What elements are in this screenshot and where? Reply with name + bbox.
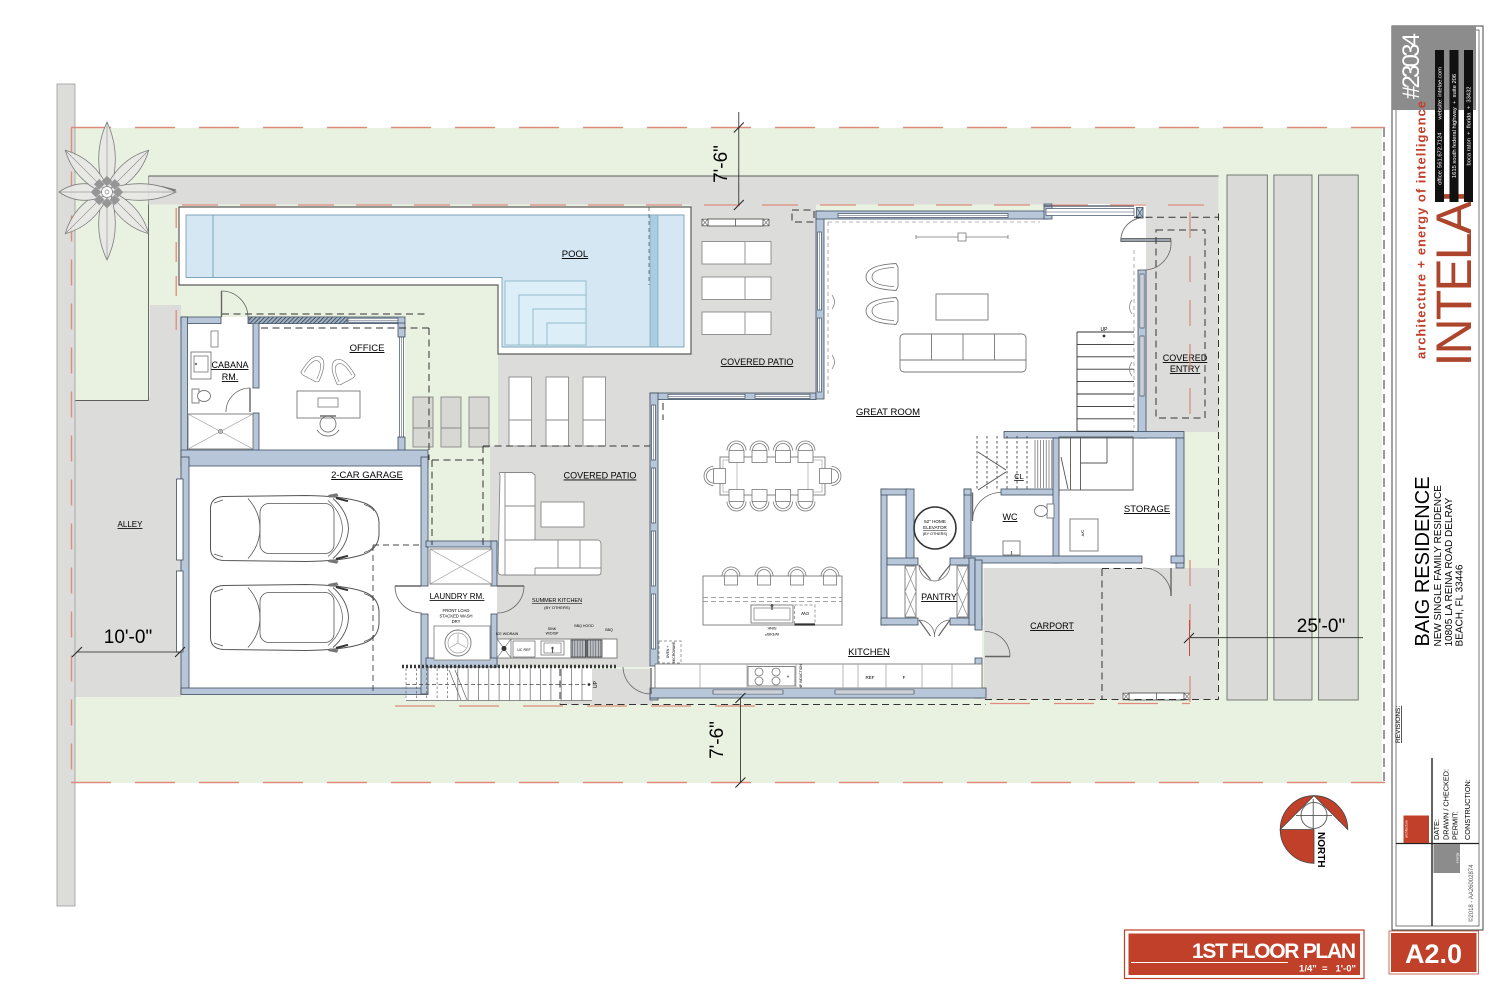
svg-text:#23034: #23034: [1398, 33, 1425, 99]
svg-text:F: F: [903, 675, 906, 680]
svg-text:GREAT ROOM: GREAT ROOM: [856, 407, 920, 418]
svg-text:STORAGE: STORAGE: [1124, 504, 1170, 515]
svg-text:W/DISP: W/DISP: [546, 632, 559, 636]
svg-text:OVEN +: OVEN +: [666, 646, 670, 659]
svg-text:COVERED: COVERED: [1163, 353, 1208, 363]
svg-text:SUMMER KITCHEN: SUMMER KITCHEN: [532, 598, 582, 604]
svg-text:office: 561.672.7124 we: office: 561.672.7124 website: intelae.co…: [1438, 67, 1444, 185]
svg-text:DATE:: DATE:: [1432, 819, 1441, 840]
svg-text:KITCHEN: KITCHEN: [848, 647, 890, 658]
svg-text:(BY OTHERS): (BY OTHERS): [544, 605, 570, 610]
svg-text:ICE W/DRAIN: ICE W/DRAIN: [496, 632, 519, 636]
svg-text:CABANA: CABANA: [211, 360, 248, 370]
svg-text:BBQ HOOD: BBQ HOOD: [574, 624, 594, 628]
svg-text:ALLEY: ALLEY: [118, 520, 144, 529]
svg-text:RM.: RM.: [222, 372, 239, 382]
svg-text:MICROWAVE: MICROWAVE: [672, 641, 676, 663]
svg-text:52" HOME: 52" HOME: [924, 519, 946, 524]
svg-text:BAIG RESIDENCE: BAIG RESIDENCE: [1412, 476, 1434, 646]
svg-text:2-CAR GARAGE: 2-CAR GARAGE: [331, 470, 403, 481]
svg-text:SINK: SINK: [548, 627, 557, 631]
svg-text:architecture: architecture: [1405, 820, 1409, 838]
svg-text:OFFICE: OFFICE: [350, 343, 385, 354]
svg-text:W/DISP: W/DISP: [765, 632, 780, 637]
svg-text:ENTRY: ENTRY: [1170, 364, 1200, 374]
svg-text:LAUNDRY RM.: LAUNDRY RM.: [430, 592, 485, 601]
svg-text:PERMIT:: PERMIT:: [1451, 811, 1460, 840]
svg-text:(BY OTHERS): (BY OTHERS): [923, 532, 948, 536]
svg-text:1615 south federal highway +: 1615 south federal highway + suite 206: [1452, 74, 1458, 178]
svg-text:SINK: SINK: [767, 626, 777, 631]
svg-text:architecture + energy of intel: architecture + energy of intelligence: [1414, 101, 1429, 359]
svg-text:1/4" = 1'-0": 1/4" = 1'-0": [1299, 964, 1356, 975]
svg-text:REF: REF: [866, 675, 875, 680]
svg-text:A2.0: A2.0: [1405, 939, 1462, 969]
svg-text:DW: DW: [801, 611, 809, 616]
svg-text:energy: energy: [1456, 853, 1460, 864]
svg-text:STACKED WASH: STACKED WASH: [439, 614, 472, 619]
svg-text:©2018 - AA26002874: ©2018 - AA26002874: [1468, 864, 1475, 922]
svg-text:UP: UP: [593, 680, 599, 688]
svg-text:DRAWN / CHECKED:: DRAWN / CHECKED:: [1442, 769, 1451, 840]
svg-text:COVERED PATIO: COVERED PATIO: [721, 357, 794, 367]
svg-text:NEW SINGLE FAMILY RESIDENCE: NEW SINGLE FAMILY RESIDENCE: [1433, 485, 1444, 647]
svg-text:REVISIONS:: REVISIONS:: [1395, 706, 1402, 743]
svg-text:A/C: A/C: [1080, 530, 1085, 537]
svg-text:4F INDUCTION: 4F INDUCTION: [799, 664, 803, 688]
svg-text:10805 LA REINA ROAD DELRAY: 10805 LA REINA ROAD DELRAY: [1444, 497, 1455, 646]
svg-text:25'-0": 25'-0": [1297, 616, 1345, 637]
svg-text:CL: CL: [1014, 472, 1024, 481]
svg-text:10'-0": 10'-0": [104, 627, 152, 648]
svg-text:1ST FLOOR PLAN: 1ST FLOOR PLAN: [1192, 940, 1356, 963]
svg-text:UC REF: UC REF: [517, 648, 531, 652]
svg-text:7'-6": 7'-6": [707, 721, 728, 759]
svg-text:NORTH: NORTH: [1315, 832, 1326, 868]
svg-text:BEACH, FL 33446: BEACH, FL 33446: [1455, 564, 1466, 646]
svg-text:UP: UP: [1101, 327, 1109, 333]
svg-text:POOL: POOL: [562, 249, 588, 260]
svg-text:7'-6": 7'-6": [711, 145, 732, 183]
svg-text:DRY: DRY: [452, 619, 461, 624]
svg-text:BBQ: BBQ: [605, 628, 613, 632]
svg-text:CARPORT: CARPORT: [1030, 621, 1074, 631]
svg-text:COVERED PATIO: COVERED PATIO: [564, 471, 637, 481]
svg-text:FRONT LOAD: FRONT LOAD: [443, 608, 470, 613]
svg-text:WC: WC: [1003, 512, 1018, 522]
svg-text:CONSTRUCTION:: CONSTRUCTION:: [1463, 779, 1472, 840]
svg-text:boca raton + florida + 334: boca raton + florida + 33432: [1467, 87, 1473, 166]
svg-text:PANTRY: PANTRY: [921, 592, 957, 602]
svg-text:ELEVATOR: ELEVATOR: [923, 525, 947, 530]
